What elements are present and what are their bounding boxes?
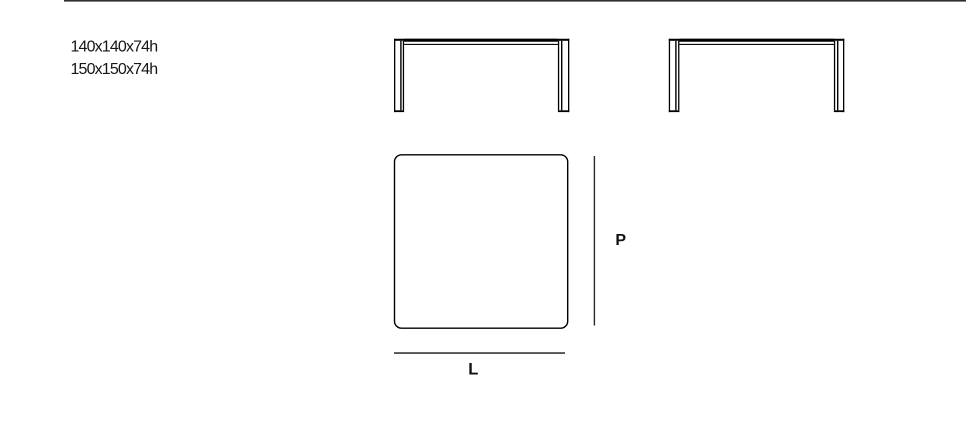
svg-text:L: L: [468, 360, 478, 378]
svg-text:150x150x74h: 150x150x74h: [71, 61, 158, 78]
svg-text:140x140x74h: 140x140x74h: [71, 39, 158, 56]
svg-text:P: P: [615, 232, 626, 249]
